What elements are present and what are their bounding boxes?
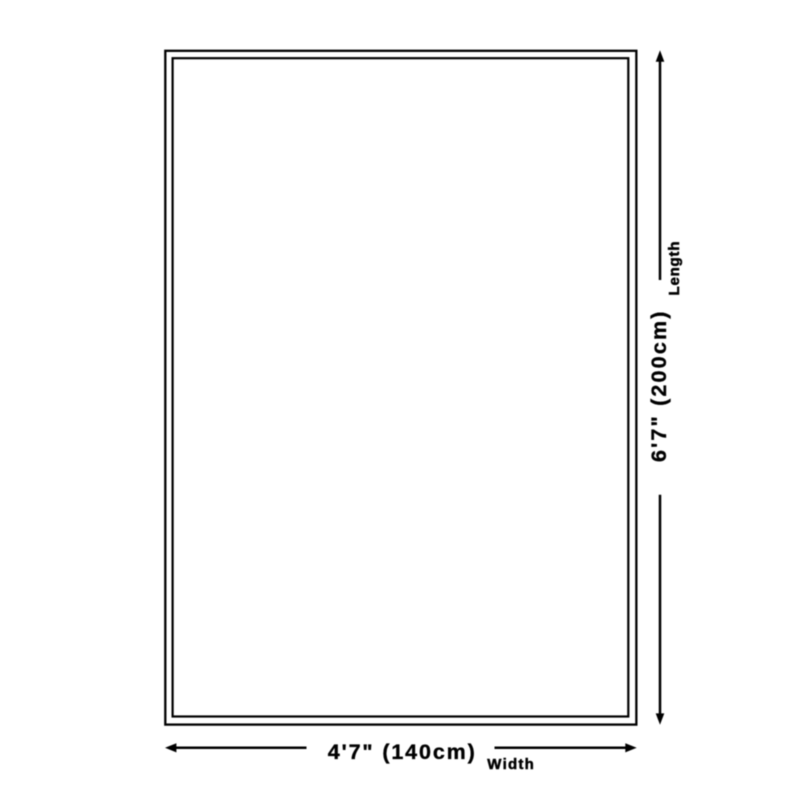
svg-text:Length: Length xyxy=(666,242,683,296)
svg-text:6'7" (200cm): 6'7" (200cm) xyxy=(647,312,671,463)
svg-text:4'7" (140cm): 4'7" (140cm) xyxy=(328,740,475,764)
svg-text:Width: Width xyxy=(487,756,534,773)
